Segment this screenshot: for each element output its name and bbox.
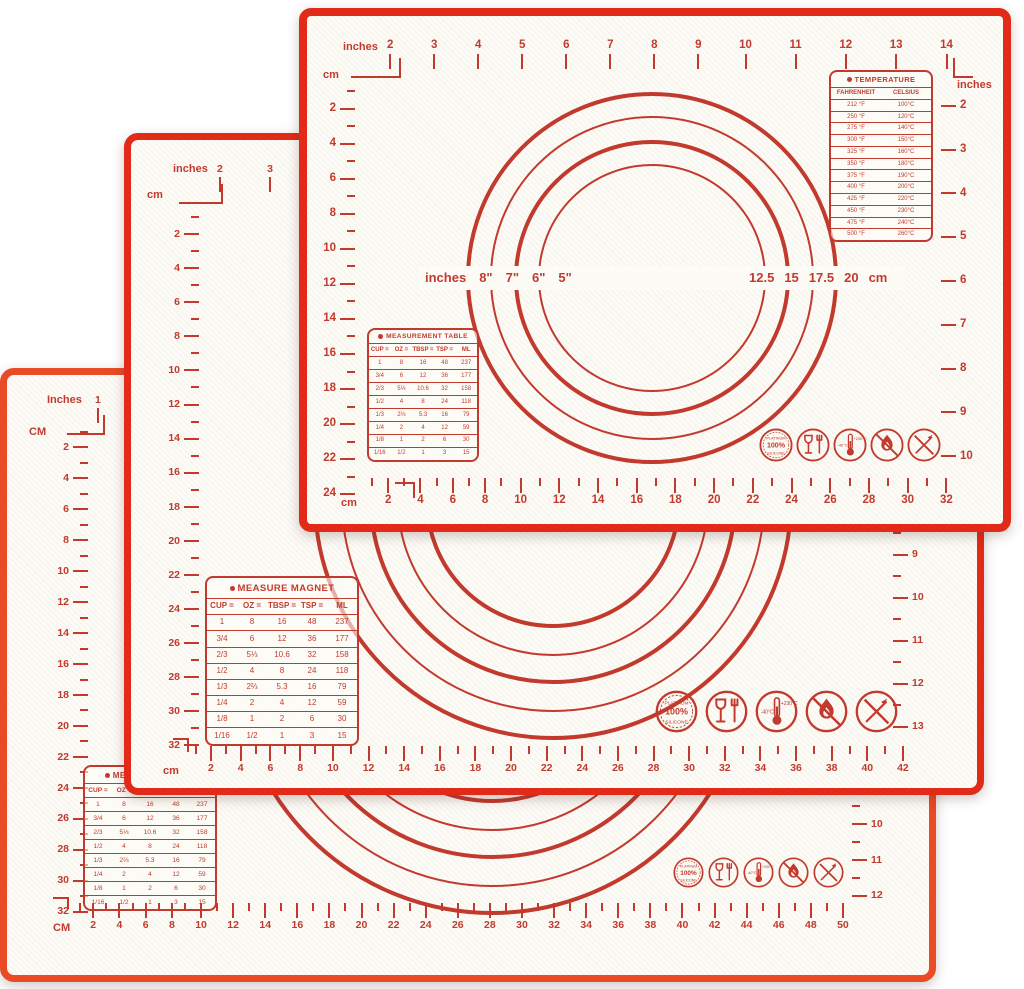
ruler-tick [941, 192, 956, 194]
minor-tick [347, 441, 355, 443]
table-row: 1/24824118 [85, 840, 215, 854]
thermo-min-text: -40°C [838, 443, 848, 448]
ruler-mark: 42 [709, 903, 721, 931]
temperature-range-icon: -40°C +230°C [833, 428, 867, 462]
ruler-number: 4 [475, 40, 481, 52]
ruler-tick [73, 663, 88, 665]
ruler-tick [73, 725, 88, 727]
table-cell: 118 [189, 840, 215, 854]
ruler-tick [893, 640, 908, 642]
minor-tick [409, 903, 411, 911]
ruler-mark: 12 [52, 597, 88, 608]
ruler-number: 38 [826, 763, 838, 774]
icons-slot: PLATINUM 100% SILICONE -40°C +230°C [759, 428, 944, 462]
minor-tick [191, 318, 199, 320]
minor-tick [347, 300, 355, 302]
ruler-number: 14 [163, 433, 180, 444]
ruler-tick [340, 283, 355, 285]
ruler-mark: 22 [319, 453, 355, 465]
ruler-tick [688, 746, 690, 761]
ruler-number: 12 [839, 40, 852, 52]
cm-unit-label: cm [163, 766, 179, 777]
table-cell: 1/8 [369, 434, 391, 447]
bottom-corner-bracket [173, 738, 189, 752]
table-row: 475 °F240°C [831, 217, 931, 229]
minor-tick [421, 746, 423, 754]
ruler-mark: 18 [319, 383, 355, 395]
table-cell: 12 [137, 812, 163, 826]
minor-tick [635, 746, 637, 754]
ruler-number: 16 [319, 348, 336, 360]
table-cell: 237 [455, 356, 477, 369]
minor-tick [347, 406, 355, 408]
table-cell: 100°C [881, 99, 931, 111]
right-inch-ruler: 910111213 [893, 532, 951, 732]
ruler-mark: 40 [677, 903, 689, 931]
table-cell: 220°C [881, 194, 931, 206]
ruler-mark: 8 [297, 746, 303, 774]
ruler-number: 16 [291, 920, 303, 931]
table-cell: TSP = [297, 599, 327, 615]
table-row: 425 °F220°C [831, 194, 931, 206]
table-cell: 325 °F [831, 146, 881, 158]
ruler-tick [184, 335, 199, 337]
table-cell: 240°C [881, 217, 931, 229]
ruler-tick [240, 746, 242, 761]
ruler-number: 22 [319, 453, 336, 465]
ruler-number: 24 [163, 604, 180, 615]
ruler-number: 10 [52, 566, 69, 577]
table-cell: 450 °F [831, 205, 881, 217]
table-cell: 4 [412, 421, 434, 434]
minor-tick [280, 903, 282, 911]
table-cell: 15 [455, 447, 477, 459]
minor-tick [601, 903, 603, 911]
table-cell: 3/4 [85, 812, 111, 826]
ruler-number: 26 [612, 763, 624, 774]
ruler-number: 2 [163, 229, 180, 240]
table-row: 450 °F230°C [831, 205, 931, 217]
ruler-mark: 4 [116, 903, 122, 931]
table-cell: 48 [163, 798, 189, 812]
minor-tick [670, 746, 672, 754]
table-row: 300 °F150°C [831, 135, 931, 147]
ruler-mark: 26 [163, 638, 199, 649]
ruler-number: 20 [319, 418, 336, 430]
table-cell: ML [455, 344, 477, 356]
ruler-mark: 5 [941, 231, 966, 243]
ruler-tick [439, 746, 441, 761]
ruler-tick [433, 54, 435, 69]
table-cell: 32 [297, 647, 327, 663]
ruler-mark: 28 [484, 903, 496, 931]
table-cell: 120°C [881, 111, 931, 123]
table-row: 3/461236177 [85, 812, 215, 826]
table-row: 1/24824118 [207, 663, 357, 679]
ruler-number: 22 [163, 570, 180, 581]
ruler-tick [73, 601, 88, 603]
ruler-tick [945, 478, 947, 493]
no-knife-icon [855, 690, 898, 733]
ruler-mark: 10 [163, 365, 199, 376]
ruler-tick [558, 478, 560, 493]
ruler-number: 1 [95, 395, 101, 406]
minor-tick [347, 195, 355, 197]
ruler-number: 2 [960, 100, 966, 112]
minor-tick [537, 903, 539, 911]
ruler-number: 6 [268, 763, 274, 774]
ruler-tick [489, 903, 491, 918]
table-cell: 5.3 [267, 679, 297, 695]
ruler-mark: 10 [739, 40, 752, 69]
table-cell: 1/8 [85, 882, 111, 896]
table-cell: 118 [327, 663, 357, 679]
ruler-number: 20 [505, 763, 517, 774]
table-cell: 177 [189, 812, 215, 826]
ruler-number: 12 [227, 920, 239, 931]
ruler-tick [340, 143, 355, 145]
ruler-number: 5 [519, 40, 525, 52]
table-cell: 3 [434, 447, 456, 459]
ruler-number: 10 [319, 243, 336, 255]
ruler-mark: 7 [941, 319, 966, 331]
minor-tick [314, 746, 316, 754]
ruler-mark: 6 [319, 173, 355, 185]
inches-unit-label: inches [173, 164, 208, 175]
cm-unit-label: cm [323, 70, 339, 81]
minor-tick [698, 903, 700, 911]
table-header-row: FAHRENHEITCELSIUS [831, 88, 931, 99]
ruler-tick [340, 178, 355, 180]
ruler-number: 36 [612, 920, 624, 931]
circle-size-label: 15 [784, 270, 798, 285]
badge-text: PLATINUM [767, 436, 786, 440]
circle-size-label: 6" [532, 270, 545, 285]
table-cell: 1/16 [369, 447, 391, 459]
table-cell: 158 [189, 826, 215, 840]
left-cm-ruler: 2468101214161820222426283032 [149, 216, 199, 751]
baking-mat-top: inches 234567891011121314 cm inches 2468… [299, 8, 1011, 532]
table-cell: 4 [237, 663, 267, 679]
ruler-tick [795, 54, 797, 69]
ruler-mark: 4 [52, 473, 88, 484]
table-cell: 48 [434, 356, 456, 369]
ruler-mark: 10 [195, 903, 207, 931]
circle-unit-label: inches [425, 270, 466, 285]
table-cell: 177 [327, 631, 357, 647]
ruler-number: 20 [163, 536, 180, 547]
table-cell: 12 [412, 369, 434, 382]
minor-tick [191, 352, 199, 354]
ruler-number: 4 [417, 495, 423, 507]
table-cell: 24 [434, 395, 456, 408]
ruler-tick [232, 903, 234, 918]
ruler-tick [171, 903, 173, 918]
table-cell: 48 [297, 615, 327, 631]
table-cell: 10.6 [267, 647, 297, 663]
ruler-mark: 24 [785, 478, 798, 507]
table-row: 181648237 [85, 798, 215, 812]
ruler-tick [73, 632, 88, 634]
ruler-mark: 4 [417, 478, 423, 507]
ruler-mark: 16 [52, 659, 88, 670]
ruler-tick [714, 903, 716, 918]
ruler-mark: 12 [363, 746, 375, 774]
ruler-mark: 22 [746, 478, 759, 507]
ruler-tick [510, 746, 512, 761]
minor-tick [191, 386, 199, 388]
ruler-tick [403, 746, 405, 761]
ruler-mark: 2 [163, 229, 199, 240]
ruler-mark: 10 [852, 819, 883, 830]
ruler-mark: 28 [863, 478, 876, 507]
ruler-mark: 16 [630, 478, 643, 507]
ruler-number: 32 [719, 763, 731, 774]
table-cell: 1/2 [237, 728, 267, 744]
table-cell: 8 [137, 840, 163, 854]
right-inch-ruler: 2345678910 [941, 100, 993, 462]
ruler-mark: 4 [163, 263, 199, 274]
ruler-tick [713, 478, 715, 493]
ruler-tick [597, 478, 599, 493]
ruler-tick [184, 608, 199, 610]
table-cell: 500 °F [831, 229, 881, 240]
minor-tick [794, 903, 796, 911]
minor-tick [893, 704, 901, 706]
table-row: 1/32⅔5.31679 [369, 408, 477, 421]
ruler-number: 18 [319, 383, 336, 395]
ruler-tick [73, 570, 88, 572]
icons-slot: PLATINUM 100% SILICONE -40°C +230°C [673, 857, 848, 888]
ruler-tick [902, 746, 904, 761]
minor-tick [742, 746, 744, 754]
ruler-tick [184, 267, 199, 269]
ruler-tick [745, 54, 747, 69]
ruler-number: 22 [388, 920, 400, 931]
ruler-tick [810, 903, 812, 918]
ruler-number: 4 [116, 920, 122, 931]
ruler-number: 14 [259, 920, 271, 931]
minor-tick [849, 746, 851, 754]
minor-tick [80, 524, 88, 526]
ruler-number: 18 [669, 495, 682, 507]
ruler-tick [946, 54, 948, 69]
ruler-tick [340, 423, 355, 425]
ruler-tick [521, 903, 523, 918]
table-cell: 36 [434, 369, 456, 382]
platinum-silicone-badge-icon: PLATINUM 100% SILICONE [673, 857, 704, 888]
table-row: 212 °F100°C [831, 99, 931, 111]
ruler-mark: 8 [52, 535, 88, 546]
bottom-cm-ruler: 2468101214161820222426283032343638404244… [79, 903, 849, 931]
ruler-mark: 7 [607, 40, 613, 69]
table-cell: CUP = [85, 784, 111, 798]
table-row: 1/161/21315 [369, 447, 477, 459]
table-cell: 4 [391, 395, 413, 408]
table-cell: 4 [137, 868, 163, 882]
thermo-min-text: -40°C [761, 710, 774, 716]
ruler-mark: 12 [852, 890, 883, 901]
ruler-number: 46 [773, 920, 785, 931]
minor-tick [762, 903, 764, 911]
minor-tick [191, 727, 199, 729]
ruler-mark: 14 [259, 903, 271, 931]
ruler-tick [759, 746, 761, 761]
certification-icons: PLATINUM 100% SILICONE -40°C +230°C [759, 428, 944, 462]
ruler-tick [565, 54, 567, 69]
ruler-number: 24 [420, 920, 432, 931]
minor-tick [80, 648, 88, 650]
minor-tick [191, 284, 199, 286]
table-title-text: MEASURE MAGNET [238, 583, 335, 594]
ruler-tick [778, 903, 780, 918]
table-row: 1/24824118 [369, 395, 477, 408]
ruler-tick [521, 54, 523, 69]
ruler-number: 24 [52, 783, 69, 794]
ruler-tick [73, 446, 88, 448]
ruler-mark: 16 [163, 467, 199, 478]
cm-unit-label: cm [341, 498, 357, 509]
ruler-number: 3 [960, 144, 966, 156]
inches-unit-label: inches [957, 80, 992, 91]
minor-tick [852, 805, 860, 807]
ruler-tick [674, 478, 676, 493]
ruler-mark: 20 [708, 478, 721, 507]
ruler-tick [332, 746, 334, 761]
minor-tick [350, 746, 352, 754]
ruler-mark: 30 [901, 478, 914, 507]
minor-tick [347, 371, 355, 373]
table-cell: 12 [434, 421, 456, 434]
table-header-row: CUP =OZ =TBSP =TSP =ML [369, 344, 477, 356]
ruler-mark: 22 [163, 570, 199, 581]
minor-tick [255, 746, 257, 754]
ruler-number: 8 [169, 920, 175, 931]
minor-tick [852, 841, 860, 843]
table-title: MEASUREMENT TABLE [369, 330, 477, 344]
ruler-mark: 12 [163, 399, 199, 410]
minor-tick [893, 532, 901, 534]
top-inch-ruler: 234567891011121314 [387, 40, 953, 69]
table-cell: 2 [237, 696, 267, 712]
table-cell: 32 [434, 382, 456, 395]
table-cell: 350 °F [831, 158, 881, 170]
ruler-tick [184, 301, 199, 303]
ruler-mark: 6 [163, 297, 199, 308]
minor-tick [852, 877, 860, 879]
table-cell: 4 [267, 696, 297, 712]
ruler-number: 38 [645, 920, 657, 931]
ruler-tick [296, 903, 298, 918]
minor-tick [344, 903, 346, 911]
table-cell: 30 [327, 712, 357, 728]
ruler-tick [340, 108, 355, 110]
ruler-mark: 32 [719, 746, 731, 774]
table-cell: OZ = [391, 344, 413, 356]
certification-icons: PLATINUM 100% SILICONE -40°C +230°C [673, 857, 848, 888]
ruler-mark: 2 [90, 903, 96, 931]
table-cell: 6 [391, 369, 413, 382]
ruler-mark: 20 [356, 903, 368, 931]
ruler-tick [184, 233, 199, 235]
table-cell: 2/3 [85, 826, 111, 840]
badge-text: PLATINUM [664, 700, 688, 706]
ruler-number: 8 [960, 363, 966, 375]
minor-tick [132, 903, 134, 911]
table-row: 181648237 [207, 615, 357, 631]
ruler-number: 36 [790, 763, 802, 774]
minor-tick [893, 575, 901, 577]
minor-tick [248, 903, 250, 911]
ruler-tick [746, 903, 748, 918]
ruler-tick [184, 369, 199, 371]
ruler-number: 44 [741, 920, 753, 931]
table-cell: 158 [455, 382, 477, 395]
minor-tick [665, 903, 667, 911]
table-cell: 180°C [881, 158, 931, 170]
table-row: 400 °F200°C [831, 182, 931, 194]
table-cell: 275 °F [831, 123, 881, 135]
ruler-number: 20 [356, 920, 368, 931]
table-cell: 475 °F [831, 217, 881, 229]
table-cell: 140°C [881, 123, 931, 135]
minor-tick [347, 125, 355, 127]
minor-tick [826, 903, 828, 911]
ruler-mark: 2 [208, 746, 214, 774]
ruler-mark: 10 [941, 451, 973, 463]
ruler-tick [419, 478, 421, 493]
origin-corner-bracket [179, 184, 223, 204]
ruler-number: 10 [871, 819, 883, 830]
table-cell: 1 [111, 882, 137, 896]
minor-tick [191, 693, 199, 695]
ruler-tick [328, 903, 330, 918]
minor-tick [191, 455, 199, 457]
ruler-mark: 3 [431, 40, 437, 69]
minor-tick [694, 478, 696, 486]
ruler-tick [941, 411, 956, 413]
ruler-tick [368, 746, 370, 761]
minor-tick [385, 746, 387, 754]
ruler-number: 10 [163, 365, 180, 376]
table-cell: 237 [327, 615, 357, 631]
ruler-mark: 32 [940, 478, 953, 507]
ruler-number: 6 [319, 173, 336, 185]
no-open-flame-icon [870, 428, 904, 462]
minor-tick [347, 230, 355, 232]
minor-tick [191, 250, 199, 252]
ruler-number: 12 [871, 890, 883, 901]
circle-size-label: 8" [479, 270, 492, 285]
table-row: 1/32⅔5.31679 [207, 679, 357, 695]
ruler-mark: 13 [893, 721, 924, 732]
ruler-number: 16 [434, 763, 446, 774]
ruler-mark: 8 [319, 208, 355, 220]
ruler-mark: 24 [576, 746, 588, 774]
table-cell: FAHRENHEIT [831, 88, 881, 99]
table-row: 1/161/21315 [207, 728, 357, 744]
table-cell: 190°C [881, 170, 931, 182]
table-title: MEASURE MAGNET [207, 578, 357, 599]
minor-tick [564, 746, 566, 754]
ruler-tick [553, 903, 555, 918]
circle-size-label: 7" [506, 270, 519, 285]
no-knife-icon [813, 857, 844, 888]
ruler-tick [941, 149, 956, 151]
table-cell: 2/3 [207, 647, 237, 663]
ruler-number: 2 [387, 40, 393, 52]
table-cell: 237 [189, 798, 215, 812]
